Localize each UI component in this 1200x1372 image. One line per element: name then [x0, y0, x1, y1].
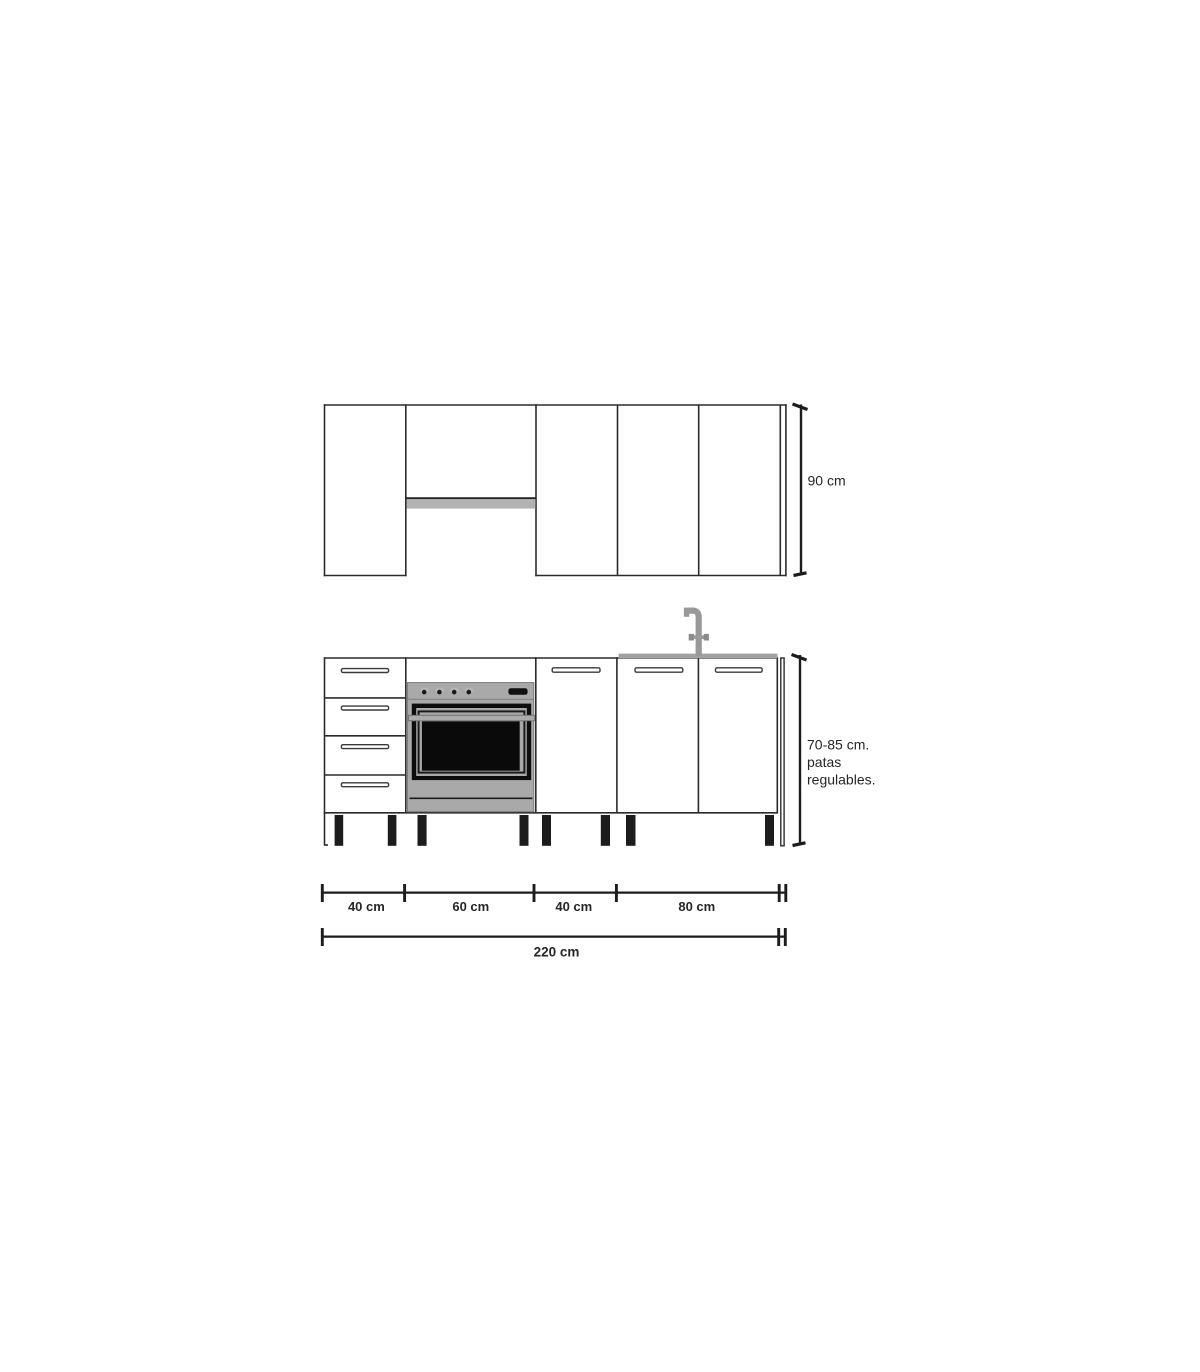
svg-text:40 cm: 40 cm — [555, 899, 592, 914]
svg-text:40 cm: 40 cm — [348, 899, 385, 914]
svg-text:90 cm: 90 cm — [808, 473, 846, 489]
svg-text:60 cm: 60 cm — [452, 899, 489, 914]
svg-text:patas: patas — [807, 754, 841, 770]
svg-text:80 cm: 80 cm — [678, 899, 715, 914]
svg-text:regulables.: regulables. — [807, 772, 876, 788]
svg-text:220 cm: 220 cm — [534, 945, 580, 960]
svg-text:70-85 cm.: 70-85 cm. — [807, 737, 869, 753]
